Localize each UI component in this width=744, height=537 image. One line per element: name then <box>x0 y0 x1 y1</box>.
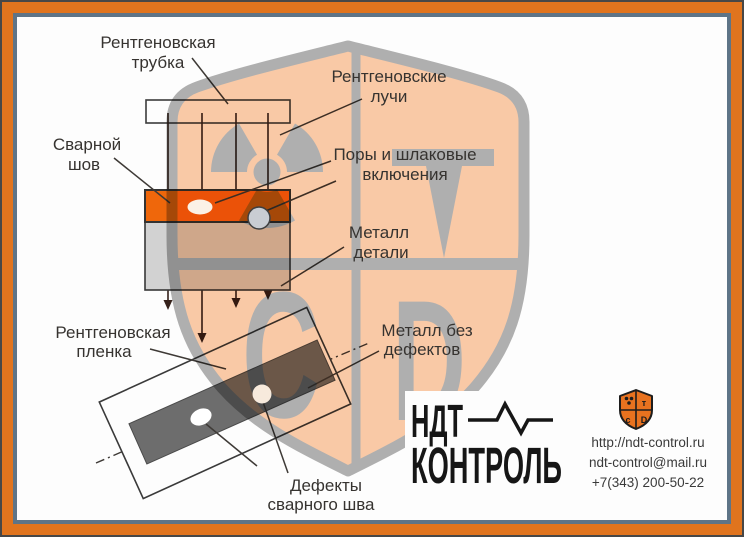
label-xray-rays-line2: лучи <box>371 87 408 106</box>
logo-text-kontrol: КОНТРОЛЬ <box>411 437 562 494</box>
label-xray-tube-line2: трубка <box>132 53 185 72</box>
label-metal-part-line1: Металл <box>349 223 409 242</box>
film-defect-circle-spot <box>253 385 272 404</box>
label-weld-seam-line2: шов <box>68 155 100 174</box>
slag-inclusion-spot <box>248 207 270 229</box>
label-no-defects-line2: дефектов <box>384 340 461 359</box>
label-pores-line1: Поры и шлаковые <box>333 145 476 164</box>
label-no-defects-line1: Металл без <box>381 321 472 340</box>
leader-weld-seam <box>114 158 170 203</box>
poster: С D <box>0 0 744 537</box>
weld-pore-spot <box>188 200 213 215</box>
label-metal-part-line2: детали <box>353 243 408 262</box>
logo-shield-icon: т с D <box>620 390 652 429</box>
contact-email[interactable]: ndt-control@mail.ru <box>589 455 707 470</box>
label-xray-tube-line1: Рентгеновская <box>100 33 215 52</box>
label-weld-defects-line1: Дефекты <box>290 476 362 495</box>
metal-part-shape <box>145 222 290 290</box>
mini-shield-letter-c: с <box>625 415 630 425</box>
label-xray-film-line1: Рентгеновская <box>55 323 170 342</box>
label-weld-defects-line2: сварного шва <box>267 495 375 514</box>
label-xray-rays-line1: Рентгеновские <box>331 67 446 86</box>
label-pores-line2: включения <box>362 165 447 184</box>
label-xray-film-line2: пленка <box>76 342 132 361</box>
contact-block: т с D http://ndt-control.ru ndt-control@… <box>589 390 707 490</box>
contact-website[interactable]: http://ndt-control.ru <box>591 435 704 450</box>
contact-phone[interactable]: +7(343) 200-50-22 <box>592 475 704 490</box>
label-weld-seam-line1: Сварной <box>53 135 121 154</box>
mini-shield-letter-d: D <box>641 415 648 425</box>
mini-shield-letter-t: т <box>642 398 647 408</box>
diagram-canvas: С D <box>0 0 744 537</box>
